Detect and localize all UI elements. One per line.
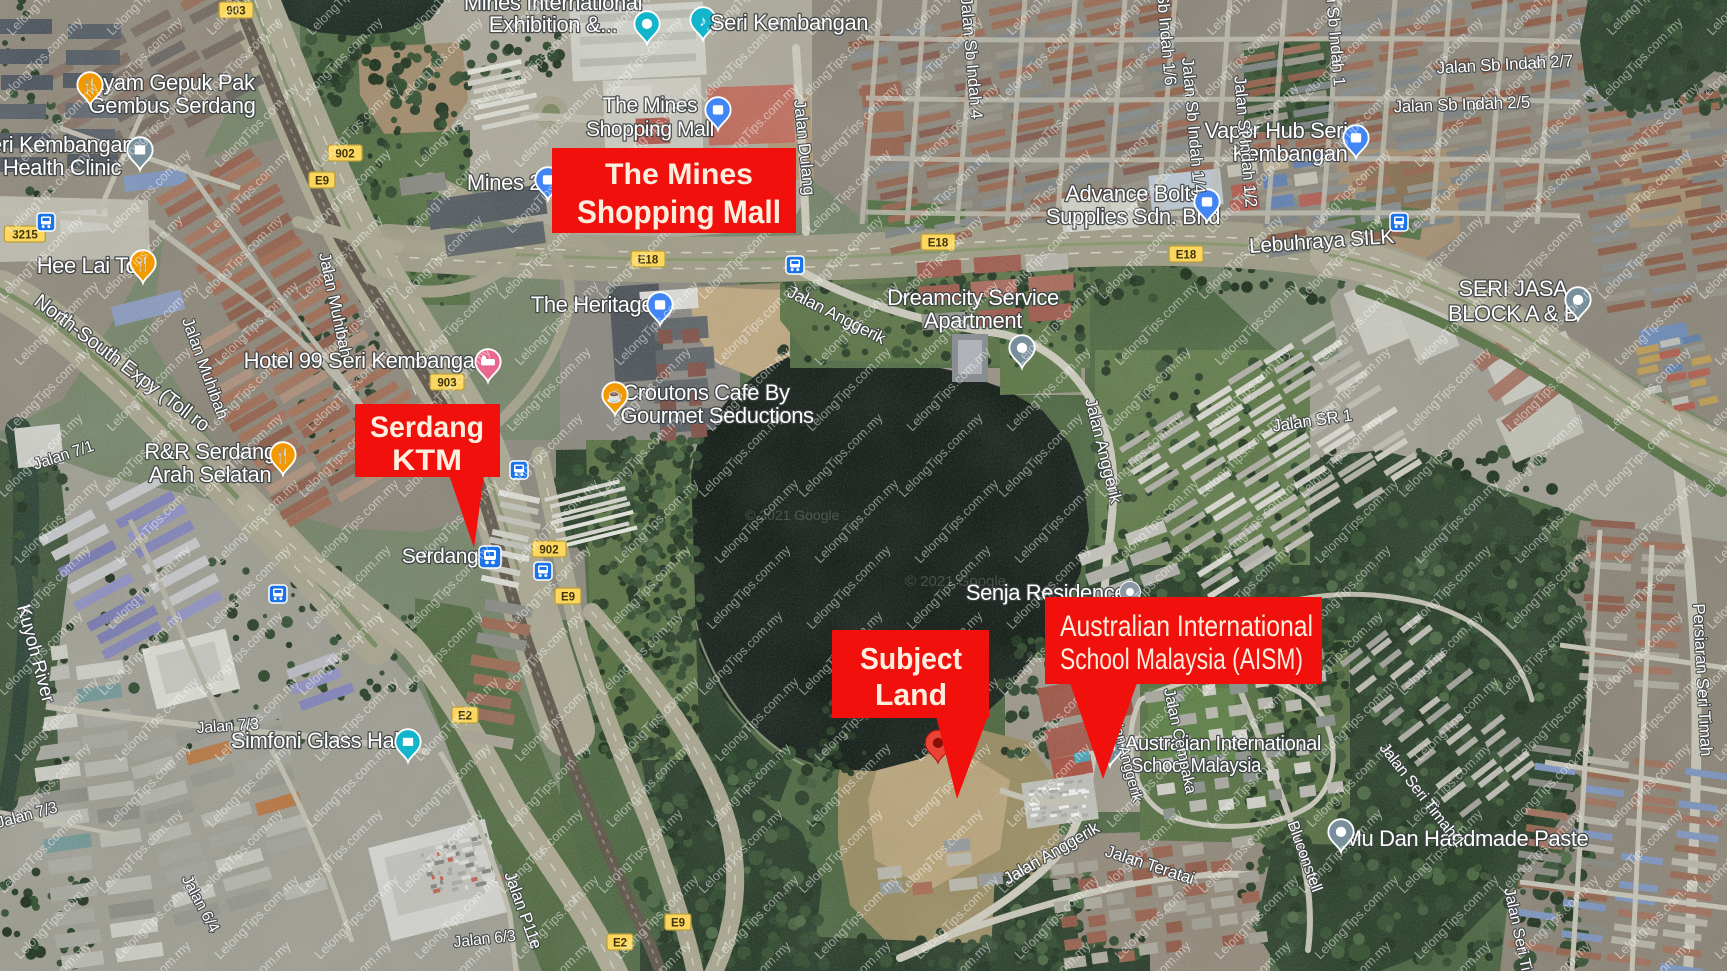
svg-text:E9: E9 — [315, 176, 329, 188]
svg-text:Australian International: Australian International — [1060, 610, 1313, 643]
svg-text:KTM: KTM — [392, 444, 462, 477]
svg-text:Vapor Hub Seri: Vapor Hub Seri — [1204, 118, 1347, 143]
svg-text:Subject: Subject — [860, 641, 962, 676]
svg-text:☕: ☕ — [606, 388, 623, 405]
svg-text:Shopping Mall: Shopping Mall — [577, 194, 781, 230]
svg-text:School Malaysia (AISM): School Malaysia (AISM) — [1060, 643, 1303, 676]
svg-text:Mines 2: Mines 2 — [467, 170, 541, 195]
svg-text:Land: Land — [875, 677, 947, 712]
svg-text:The Mines: The Mines — [605, 158, 753, 191]
svg-text:E18: E18 — [1176, 250, 1197, 262]
svg-text:Serdang: Serdang — [370, 411, 484, 444]
svg-text:E9: E9 — [671, 918, 685, 930]
svg-text:E9: E9 — [561, 592, 575, 604]
svg-text:🍴: 🍴 — [274, 448, 291, 465]
svg-text:902: 902 — [539, 545, 558, 557]
